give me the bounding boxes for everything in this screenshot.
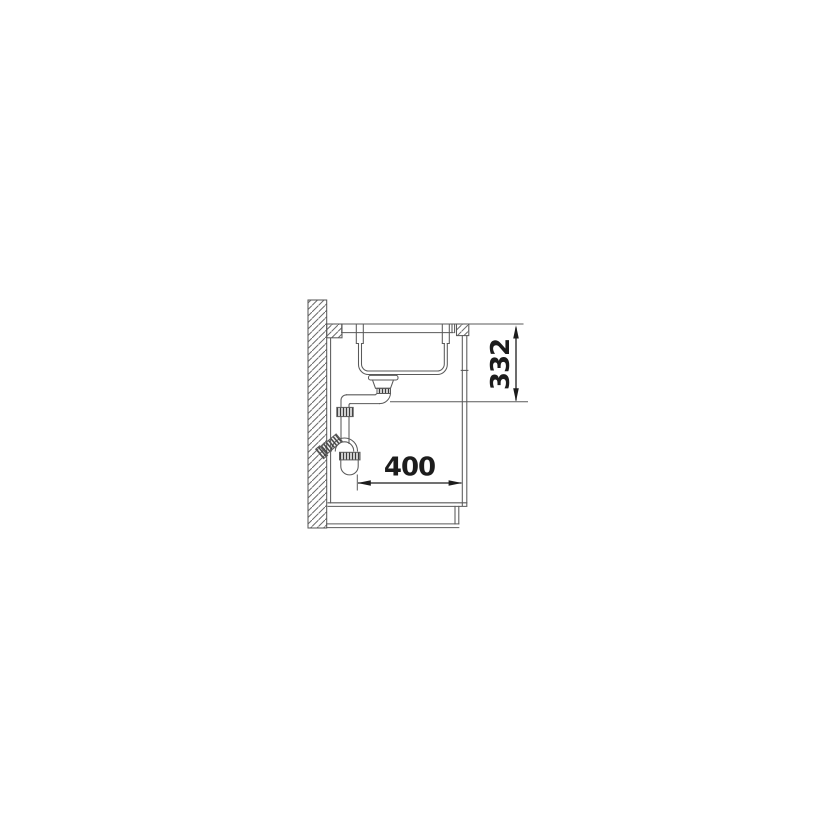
pipe-vertical xyxy=(341,417,349,444)
pipe-coupling-nut xyxy=(337,407,353,416)
arrowhead-right xyxy=(449,480,462,486)
pipe-horizontal-top xyxy=(347,394,378,395)
drain-pipe xyxy=(337,394,391,444)
arrowhead-left xyxy=(358,480,371,486)
strainer-nut xyxy=(377,388,391,393)
bowl-right-wall-upper xyxy=(442,324,449,344)
trap-cup-nut xyxy=(340,452,361,460)
sink-bowl xyxy=(356,324,449,375)
sink-rim-right-edge xyxy=(452,324,455,333)
bowl-inner-surface xyxy=(362,344,445,372)
cabinet-bottom xyxy=(328,503,467,507)
plinth-front xyxy=(455,506,459,524)
dimension-horizontal: 400 xyxy=(357,453,462,491)
pipe-elbow-outer xyxy=(380,394,391,404)
arrowhead-up xyxy=(513,325,519,338)
cabinet-right-panel xyxy=(462,336,467,506)
wall-hatch xyxy=(308,300,327,528)
strainer-flange xyxy=(369,375,399,380)
dimension-value-horizontal: 400 xyxy=(384,453,435,483)
plinth xyxy=(327,506,459,527)
countertop-right-block xyxy=(457,324,469,336)
wall-section xyxy=(308,300,327,528)
bowl-outer-surface xyxy=(359,344,448,375)
drain-strainer xyxy=(369,375,399,393)
trap-cup xyxy=(341,460,358,475)
countertop-left-block xyxy=(327,324,342,338)
dimension-vertical: 332 xyxy=(390,325,528,402)
strainer-body xyxy=(373,380,394,388)
dimension-value-vertical: 332 xyxy=(486,339,516,390)
pipe-left-elbow xyxy=(341,395,350,408)
plinth-bottom xyxy=(327,524,459,528)
technical-drawing: 332 400 xyxy=(0,0,830,830)
bowl-left-wall-upper xyxy=(356,324,363,344)
drawing-canvas: 332 400 xyxy=(0,0,830,830)
